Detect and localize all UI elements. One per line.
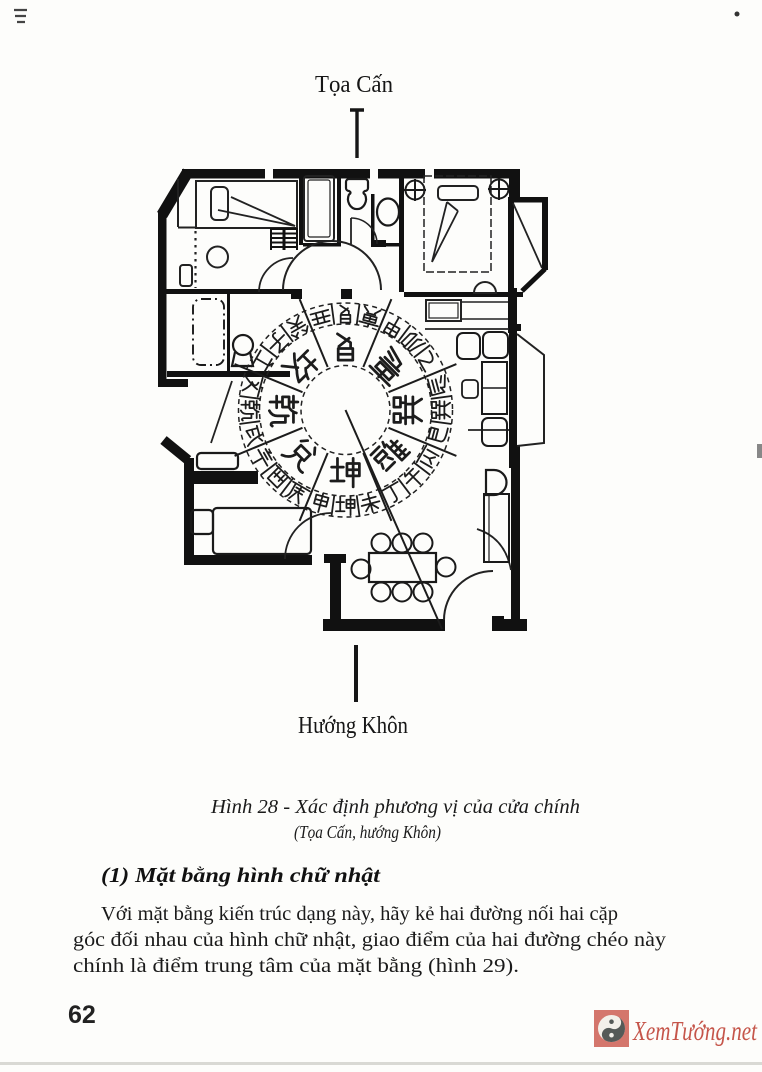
- svg-text:Hình 28 - Xác định phương vị c: Hình 28 - Xác định phương vị của cửa chí…: [210, 796, 580, 818]
- svg-text:góc đối nhau của hình chữ nhật: góc đối nhau của hình chữ nhật, giao điể…: [73, 929, 667, 951]
- svg-text:XemTướng.net: XemTướng.net: [632, 1016, 758, 1046]
- svg-text:chính là điểm trung tâm của mặ: chính là điểm trung tâm của mặt bằng (hì…: [73, 955, 519, 977]
- svg-text:Hướng Khôn: Hướng Khôn: [298, 713, 408, 739]
- svg-text:(Tọa Cấn, hướng Khôn): (Tọa Cấn, hướng Khôn): [294, 822, 441, 843]
- svg-text:Với mặt bằng kiến trúc dạng nà: Với mặt bằng kiến trúc dạng này, hãy kẻ …: [101, 903, 618, 925]
- svg-text:62: 62: [68, 1001, 96, 1029]
- svg-text:Tọa Cấn: Tọa Cấn: [315, 72, 393, 98]
- svg-text:(1) Mặt bằng hình chữ nhật: (1) Mặt bằng hình chữ nhật: [101, 863, 381, 887]
